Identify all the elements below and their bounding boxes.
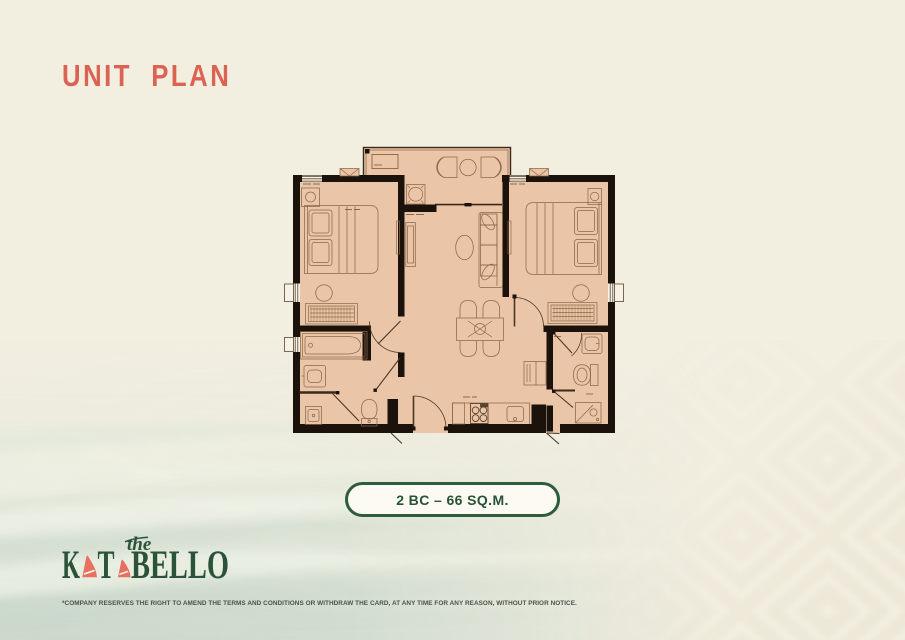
- svg-text:K: K: [62, 542, 80, 587]
- svg-text:T: T: [98, 542, 115, 587]
- svg-text:the: the: [127, 534, 152, 555]
